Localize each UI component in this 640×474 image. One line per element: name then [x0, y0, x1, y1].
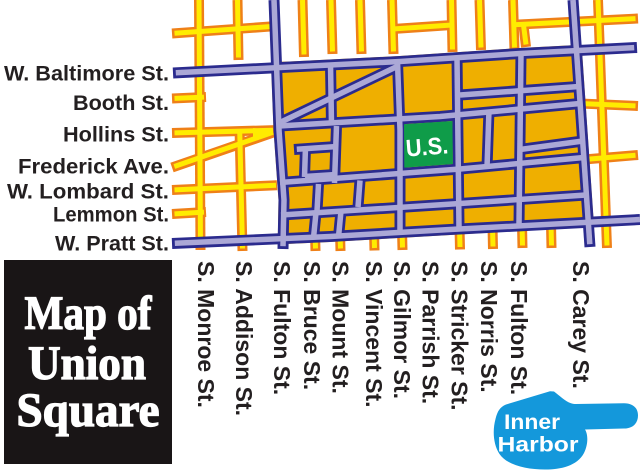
- svg-text:S. Norris St.: S. Norris St.: [476, 261, 502, 393]
- svg-text:Inner: Inner: [504, 411, 560, 434]
- svg-text:Hollins St.: Hollins St.: [63, 124, 169, 147]
- svg-text:S. Fulton St.: S. Fulton St.: [506, 261, 532, 395]
- svg-text:S. Addison St.: S. Addison St.: [231, 261, 257, 416]
- svg-text:S. Mount St.: S. Mount St.: [328, 261, 354, 394]
- svg-text:U.S.: U.S.: [405, 132, 449, 162]
- svg-text:S. Stricker St.: S. Stricker St.: [447, 261, 473, 411]
- svg-text:W. Pratt St.: W. Pratt St.: [55, 233, 169, 256]
- svg-text:S. Fulton St.: S. Fulton St.: [269, 261, 295, 395]
- svg-text:Map of: Map of: [25, 287, 153, 340]
- svg-text:Harbor: Harbor: [498, 434, 579, 457]
- svg-text:S. Monroe St.: S. Monroe St.: [193, 261, 219, 408]
- svg-text:S. Carey St.: S. Carey St.: [568, 261, 594, 389]
- svg-text:S. Gilmor St.: S. Gilmor St.: [389, 261, 415, 399]
- svg-text:S. Bruce St.: S. Bruce St.: [299, 261, 325, 390]
- svg-text:W. Baltimore St.: W. Baltimore St.: [4, 63, 169, 86]
- svg-text:S. Parrish St.: S. Parrish St.: [418, 261, 444, 404]
- svg-text:S. Vincent St.: S. Vincent St.: [361, 261, 387, 408]
- svg-text:Frederick Ave.: Frederick Ave.: [18, 156, 169, 179]
- svg-text:W. Lombard St.: W. Lombard St.: [7, 181, 169, 204]
- svg-text:Booth St.: Booth St.: [73, 92, 169, 115]
- svg-text:Lemmon St.: Lemmon St.: [53, 204, 169, 227]
- svg-text:Square: Square: [17, 384, 160, 437]
- svg-text:Union: Union: [28, 337, 146, 390]
